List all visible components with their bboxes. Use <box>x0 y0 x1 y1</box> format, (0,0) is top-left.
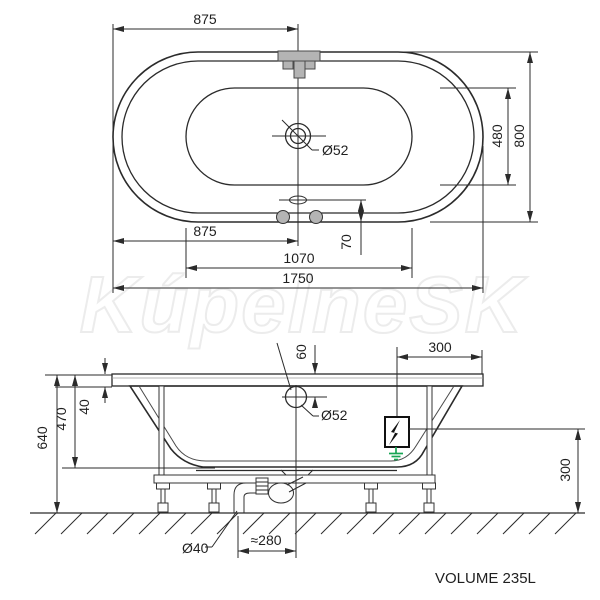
waste-leader-line <box>212 511 237 547</box>
leg <box>423 483 436 512</box>
rim-slab <box>112 374 483 386</box>
top-view: Ø52 875 480 <box>113 11 538 293</box>
dim-280: ≈280 <box>250 532 281 548</box>
overflow-leader-line <box>277 343 291 390</box>
dim-1070: 1070 <box>283 250 314 266</box>
dim-470: 470 <box>53 407 69 431</box>
leg <box>208 483 221 512</box>
leg <box>365 483 378 512</box>
bathtub-technical-drawing: KúpelneSK Ø52 <box>0 0 600 600</box>
floor-hatching <box>30 513 585 534</box>
frame-post-left <box>159 386 164 475</box>
drain-diameter-label: Ø52 <box>322 142 349 158</box>
top-view-dimensions <box>113 29 530 288</box>
siphon-trap <box>269 483 294 503</box>
dim-300-top: 300 <box>428 339 452 355</box>
dim-70: 70 <box>338 234 354 250</box>
volume-label: VOLUME 235L <box>435 570 536 587</box>
electrical-connection <box>385 347 585 460</box>
side-view-extension-lines <box>45 350 482 558</box>
handle-hole-right <box>310 211 323 224</box>
faucet-fixture <box>278 51 320 78</box>
overflow-side-view <box>277 343 327 558</box>
handle-hole-left <box>277 211 290 224</box>
dim-875-top: 875 <box>193 11 217 27</box>
dim-waste-diameter: Ø40 <box>182 540 209 556</box>
frame-post-right <box>427 386 432 475</box>
leg <box>157 483 170 512</box>
side-view: Ø52 <box>30 339 585 558</box>
ground-symbol-icon <box>389 447 403 460</box>
dim-40: 40 <box>76 399 92 415</box>
dim-480: 480 <box>489 124 505 148</box>
technical-drawing-page: KúpelneSK Ø52 <box>0 0 600 600</box>
side-view-dimensions <box>57 345 578 551</box>
electric-box <box>385 417 409 447</box>
dim-875-bottom: 875 <box>193 223 217 239</box>
dim-640: 640 <box>34 426 50 450</box>
dim-300-right: 300 <box>557 458 573 482</box>
overflow-diameter-label: Ø52 <box>321 407 348 423</box>
dim-1750: 1750 <box>282 270 313 286</box>
dim-800: 800 <box>511 124 527 148</box>
dim-60: 60 <box>293 344 309 360</box>
drain-leader-line <box>282 120 312 150</box>
waste-elbow-pipe <box>234 483 256 513</box>
drain-top-view <box>272 120 326 150</box>
